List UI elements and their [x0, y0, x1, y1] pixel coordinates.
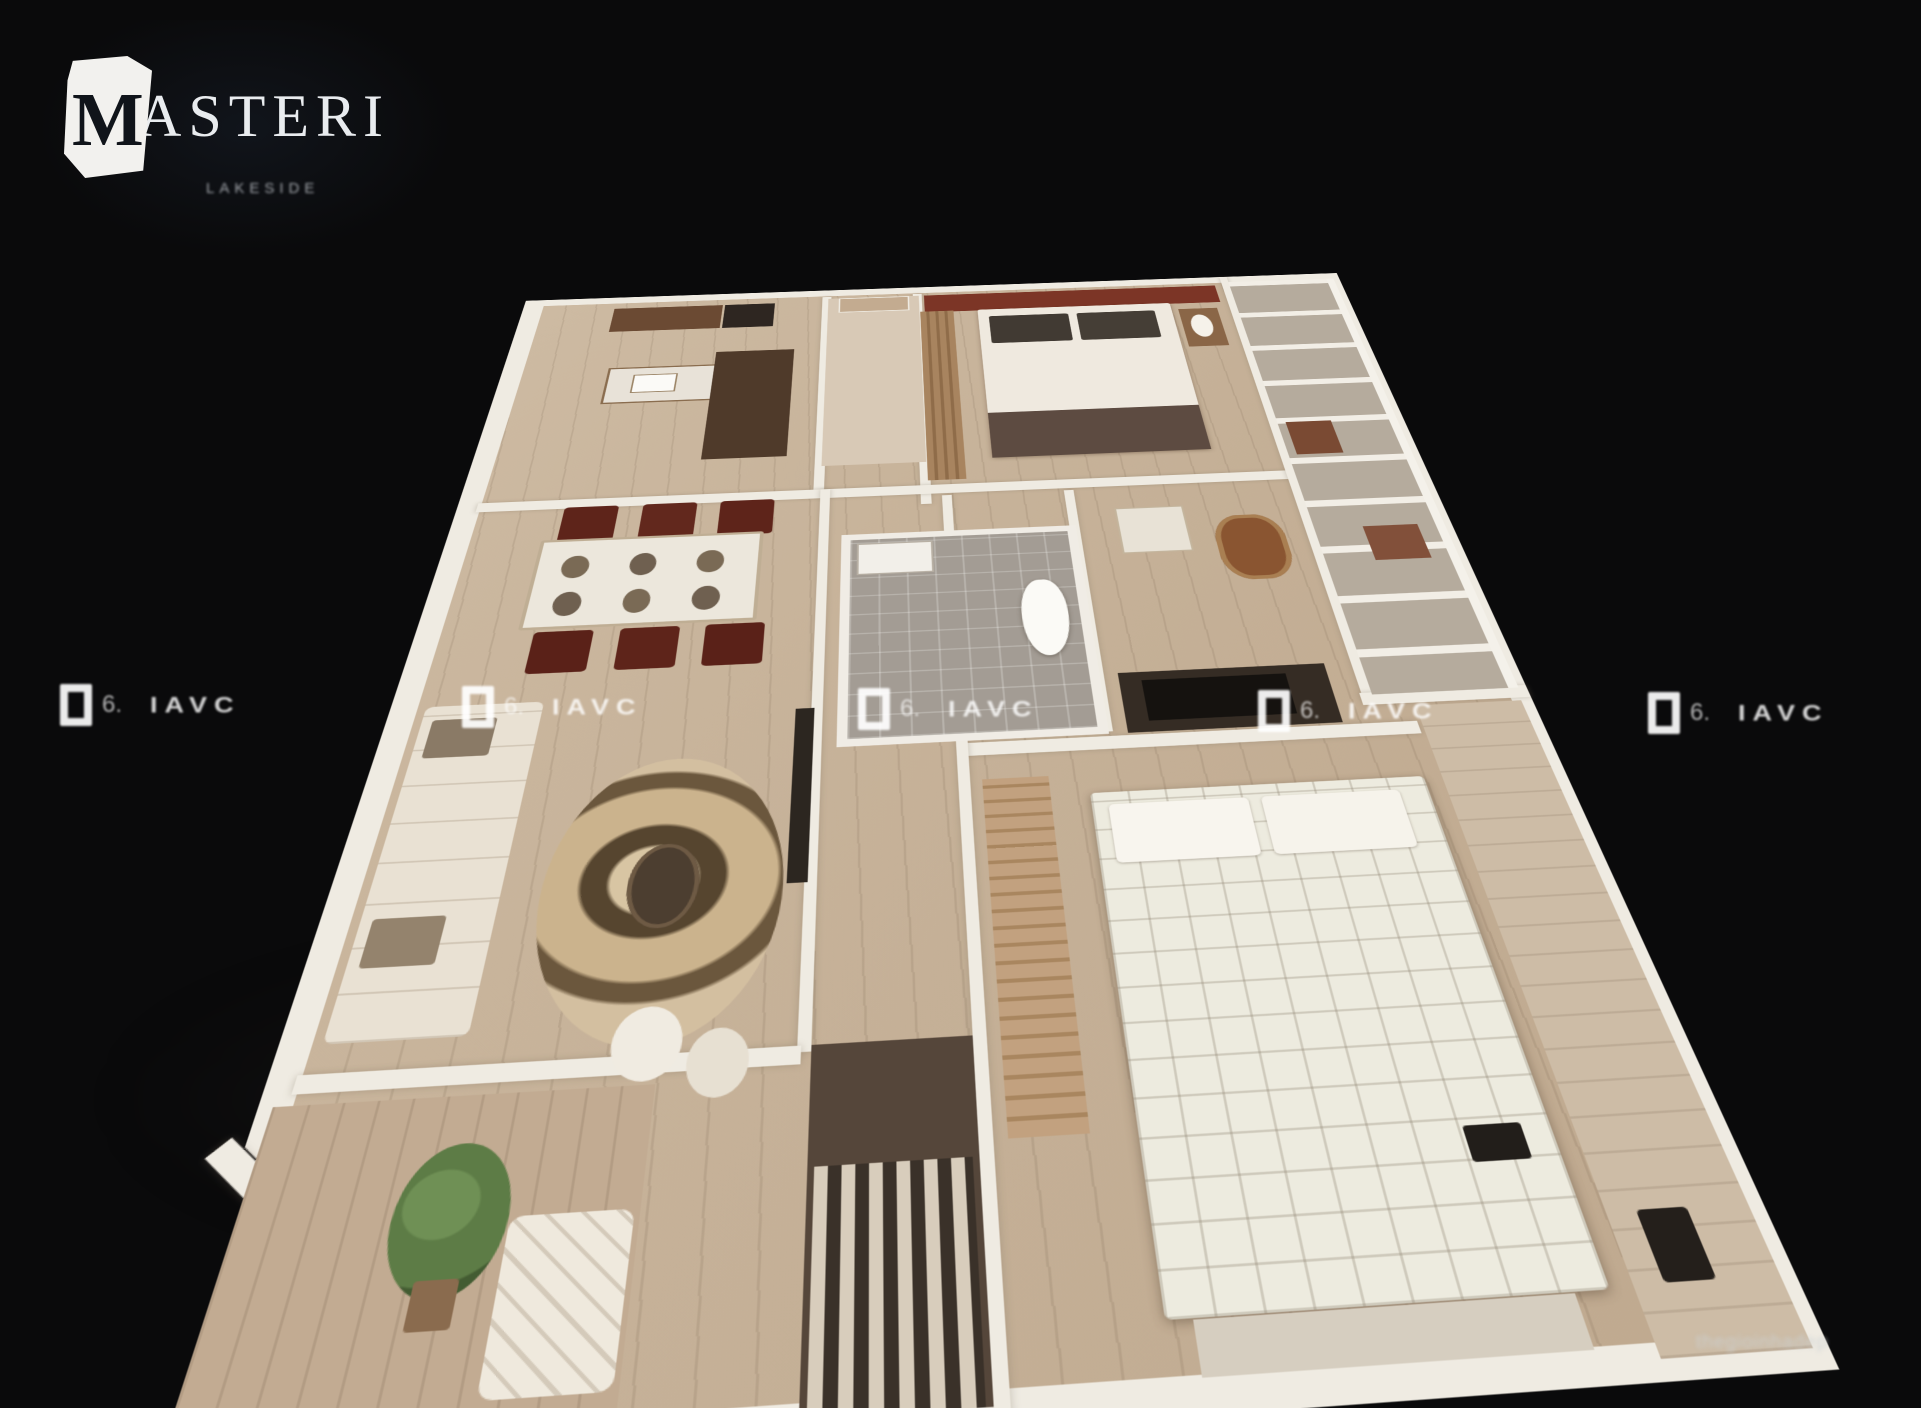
bed-1-pillow-dark — [989, 314, 1073, 344]
square-outline-icon — [858, 688, 890, 730]
kitchen-sink — [630, 374, 678, 394]
watermark-text: IAVC — [552, 694, 643, 719]
dining-chair — [716, 499, 774, 535]
watermark-text: IAVC — [1738, 700, 1829, 725]
bathroom-vanity — [856, 541, 934, 575]
dining-chair — [700, 622, 765, 666]
watermark: 6. IAVC — [60, 684, 241, 726]
watermark: 6. IAVC — [1648, 692, 1829, 734]
kitchen-upper-cabinets — [609, 305, 723, 332]
square-outline-icon — [1258, 690, 1290, 732]
masteri-logo-icon: M — [64, 56, 152, 178]
study-desk — [1114, 506, 1194, 554]
watermark-text: IAVC — [1348, 698, 1439, 723]
sofa-throw-pillow — [358, 916, 446, 969]
square-outline-icon — [462, 686, 494, 728]
entry-door — [838, 296, 909, 313]
watermark-number: 6. — [1300, 697, 1320, 725]
watermark-number: 6. — [1690, 699, 1710, 727]
bed-2-pillow — [1261, 790, 1418, 855]
logo-initial: M — [72, 82, 144, 158]
logo-wordmark: ASTERI — [138, 82, 390, 151]
kitchen-island-cabinet — [701, 349, 794, 459]
bed-1-pillow-dark — [1076, 311, 1162, 341]
square-outline-icon — [60, 684, 92, 726]
bed-2-remote — [1462, 1123, 1532, 1163]
bed-1-foot-throw — [988, 405, 1212, 458]
dining-table — [518, 531, 764, 630]
watermark-text: IAVC — [150, 692, 241, 717]
footer-caption: thegioinhadep — [1696, 1332, 1828, 1354]
watermark-number: 6. — [504, 693, 524, 721]
watermark-number: 6. — [102, 691, 122, 719]
kitchen-appliance — [722, 304, 775, 329]
logo-subtitle: LAKESIDE — [206, 180, 319, 197]
dining-chair — [613, 626, 681, 670]
brand-logo: M ASTERI LAKESIDE — [64, 56, 390, 178]
floorplan — [130, 273, 1839, 1408]
watermark: 6. IAVC — [462, 686, 643, 728]
watermark-number: 6. — [900, 695, 920, 723]
screenshot-canvas: M ASTERI LAKESIDE 6. IAVC 6. IAVC 6. IAV… — [0, 0, 1921, 1408]
dining-chair — [524, 630, 595, 675]
watermark: 6. IAVC — [1258, 690, 1439, 732]
room-entry — [821, 296, 926, 466]
striped-vent — [807, 1157, 986, 1408]
watermark: 6. IAVC — [858, 688, 1039, 730]
watermark-text: IAVC — [948, 696, 1039, 721]
square-outline-icon — [1648, 692, 1680, 734]
bed-2-pillow — [1109, 798, 1262, 864]
